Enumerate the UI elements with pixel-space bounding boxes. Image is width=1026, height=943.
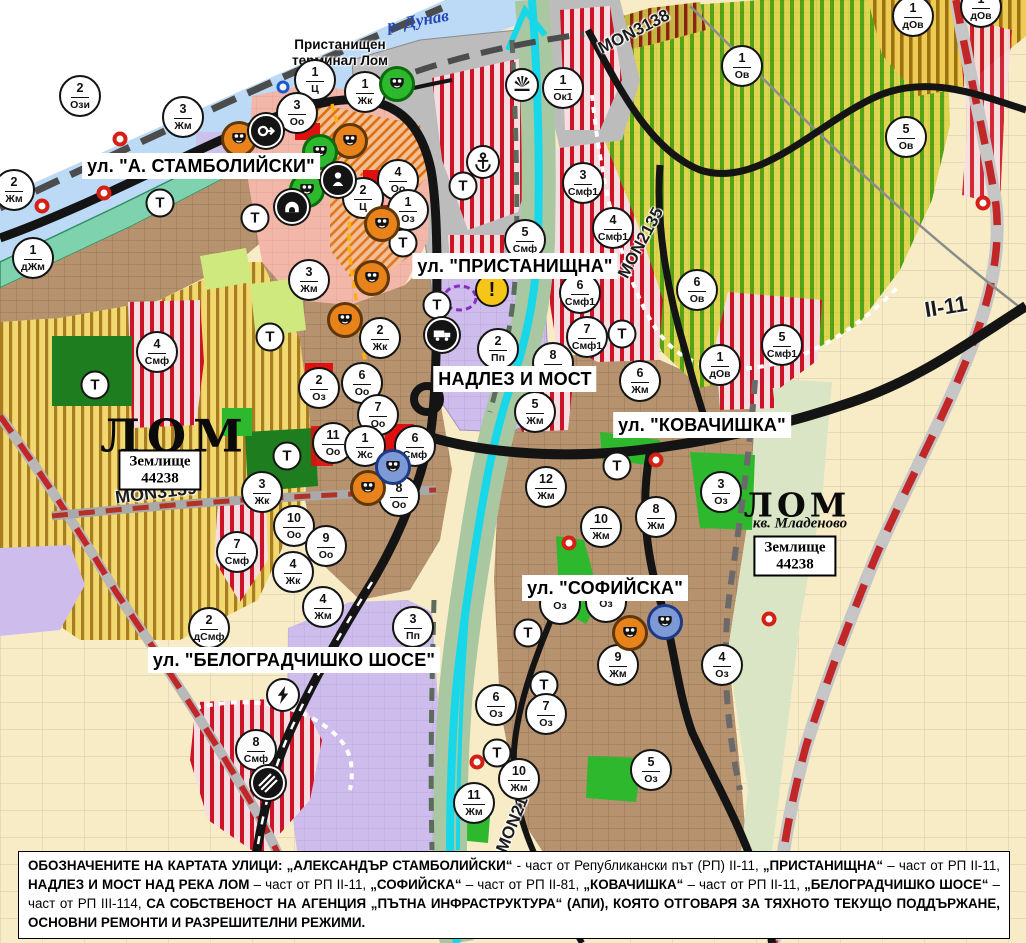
cave-glyph	[280, 195, 304, 219]
zone-number: 2	[371, 324, 389, 340]
zone-code: Жм	[510, 781, 527, 794]
transport-marker: Т	[256, 323, 285, 352]
footer-emphasis-text: „ПРИСТАНИЩНА“	[763, 858, 883, 873]
zone-marker: 1 дЖм	[12, 237, 54, 279]
zone-marker: 4 Смф1	[592, 207, 634, 249]
bolt-icon	[266, 678, 300, 712]
zone-code: Оз	[714, 494, 727, 507]
zone-number: 8	[544, 349, 562, 365]
zone-code: Ов	[735, 68, 750, 81]
zone-number: 5	[516, 226, 534, 242]
zone-number: 9	[609, 651, 627, 667]
zone-number: 6	[631, 367, 649, 383]
zone-code: Жс	[357, 448, 372, 461]
zone-number: 8	[647, 503, 665, 519]
zone-number: 4	[389, 166, 407, 182]
zone-marker: 10 Жм	[580, 506, 622, 548]
zone-marker: 9 Оо	[305, 525, 347, 567]
zone-marker: 2 Пп	[477, 328, 519, 370]
footer-emphasis-text: „СОФИЙСКА“	[370, 877, 461, 892]
zone-number: 4	[284, 558, 302, 574]
transport-marker: Т	[608, 320, 637, 349]
anchor-glyph	[471, 150, 495, 174]
zone-code: Смф1	[565, 295, 595, 308]
zone-number: 12	[535, 473, 557, 489]
zone-marker: 10 Жм	[498, 758, 540, 800]
zone-code: Жм	[314, 609, 331, 622]
zone-marker: 8 Смф	[235, 729, 277, 771]
zone-code: Жк	[255, 494, 270, 507]
zone-marker: 2 дСмф	[188, 607, 230, 649]
zone-code: Ов	[899, 139, 914, 152]
zoning-map: 2 Ози1 Ц1 Жк3 Оо3 Жм1 Ок12 Жм1 дЖм4 Оо2	[0, 0, 1026, 943]
zone-number: 1	[554, 74, 572, 90]
theater-mask-orange-glyph	[338, 129, 362, 153]
zone-code: дЖм	[21, 260, 45, 273]
zone-marker: 5 Смф1	[761, 324, 803, 366]
zone-marker: 1 Ов	[721, 45, 763, 87]
zone-number: 1	[399, 196, 417, 212]
zone-code: Жм	[609, 667, 626, 680]
zone-code: Пп	[406, 629, 420, 642]
ring-arrow-icon	[249, 114, 283, 148]
footer-emphasis-text: „БЕЛОГРАДЧИШКО ШОСЕ“	[804, 877, 988, 892]
zone-number: 5	[773, 331, 791, 347]
street-label: ул. "СОФИЙСКА"	[522, 575, 688, 601]
red-dot-icon	[762, 612, 777, 627]
zone-marker: 5 Оз	[630, 749, 672, 791]
street-label: ул. "ПРИСТАНИЩНА"	[412, 253, 617, 279]
zone-number: 7	[578, 323, 596, 339]
transport-marker: Т	[603, 452, 632, 481]
zone-marker: 7 Смф	[216, 531, 258, 573]
zone-number: 4	[713, 651, 731, 667]
zone-code: дОв	[709, 367, 730, 380]
zone-number: 2	[310, 374, 328, 390]
theater-mask-orange-glyph	[370, 212, 394, 236]
zone-code: Оо	[326, 445, 341, 458]
footer-emphasis-text: СА СОБСТВЕНОСТ НА АГЕНЦИЯ „ПЪТНА ИНФРАСТ…	[28, 896, 1000, 930]
theater-mask-orange-glyph	[360, 266, 384, 290]
zone-code: Жм	[631, 383, 648, 396]
street-label: ул. "БЕЛОГРАДЧИШКО ШОСЕ"	[148, 647, 440, 673]
zone-code: Жм	[174, 119, 191, 132]
zone-code: Смф	[145, 354, 169, 367]
red-dot-icon	[35, 199, 50, 214]
zone-code: дОв	[902, 18, 923, 31]
zone-code: Оз	[312, 390, 325, 403]
transport-marker: Т	[81, 371, 110, 400]
land-unit-east-line1: Землище	[764, 540, 825, 556]
theater-mask-blue-icon	[647, 604, 683, 640]
theater-mask-orange-glyph	[333, 308, 357, 332]
zone-marker: 1 Ок1	[542, 67, 584, 109]
red-dot-icon	[976, 196, 991, 211]
truck-icon	[425, 318, 459, 352]
zone-marker: 7 Оз	[525, 693, 567, 735]
footer-emphasis-text: „КОВАЧИШКА“	[583, 877, 683, 892]
footer-emphasis-text: ОБОЗНАЧЕНИТЕ НА КАРТАТА УЛИЦИ:	[28, 858, 287, 873]
zone-code: Жм	[5, 192, 22, 205]
zone-marker: 4 Смф	[136, 331, 178, 373]
zone-number: 1	[904, 2, 922, 18]
theater-mask-blue-glyph	[381, 455, 405, 479]
monument-icon	[321, 163, 355, 197]
footer-text: - част от Републикански път (РП) II-11,	[512, 858, 762, 873]
zone-number: 2	[489, 335, 507, 351]
zone-marker: 12 Жм	[525, 466, 567, 508]
zone-marker: 3 Жм	[288, 259, 330, 301]
zone-number: 10	[508, 765, 530, 781]
zone-marker: 2 Ози	[59, 75, 101, 117]
zone-code: Смф1	[598, 230, 628, 243]
theater-mask-orange-glyph	[618, 621, 642, 645]
zone-number: 11	[322, 429, 343, 445]
transport-marker: Т	[423, 291, 452, 320]
zone-marker: 3 Оз	[700, 471, 742, 513]
truck-glyph	[430, 323, 454, 347]
zone-code: Ц	[359, 200, 367, 213]
zone-number: 1	[972, 0, 990, 9]
theater-mask-blue-icon	[375, 449, 411, 485]
zone-code: Смф1	[767, 347, 797, 360]
zone-number: 7	[537, 700, 555, 716]
theater-mask-orange-glyph	[356, 476, 380, 500]
zone-code: Ок1	[553, 90, 572, 103]
blue-ring-icon	[277, 81, 290, 94]
zone-number: 6	[353, 369, 371, 385]
zone-number: 1	[24, 244, 42, 260]
zone-number: 3	[574, 169, 592, 185]
zone-marker: 3 Смф1	[562, 162, 604, 204]
rail-crossing-glyph	[256, 771, 280, 795]
zone-marker: 2 Оз	[298, 367, 340, 409]
zone-number: 4	[314, 593, 332, 609]
zone-marker: 3 Пп	[392, 606, 434, 648]
zone-marker: 3 Жм	[162, 96, 204, 138]
zone-marker: 5 Жм	[514, 391, 556, 433]
theater-mask-orange-icon	[364, 206, 400, 242]
footer-text: – част от РП II-11,	[249, 877, 370, 892]
transport-marker: Т	[273, 442, 302, 471]
zone-code: Пп	[491, 351, 505, 364]
zone-marker: 6 Ов	[676, 269, 718, 311]
red-dot-icon	[470, 755, 485, 770]
red-dot-icon	[97, 186, 112, 201]
zone-number: 3	[174, 103, 192, 119]
zone-marker: 4 Жк	[272, 551, 314, 593]
zone-code: Смф1	[568, 185, 598, 198]
zone-marker: 7 Смф1	[566, 316, 608, 358]
zone-code: Жм	[537, 489, 554, 502]
land-unit-east-line2: 44238	[776, 556, 814, 572]
anchor-icon	[466, 145, 500, 179]
zone-code: Смф	[225, 554, 249, 567]
transport-marker: Т	[146, 189, 175, 218]
zone-marker: 1 дОв	[699, 344, 741, 386]
mladenovo-quarter-label: кв. Младеново	[753, 516, 847, 533]
zone-code: Оо	[287, 528, 302, 541]
zone-code: Оо	[392, 498, 407, 511]
road-ownership-note: ОБОЗНАЧЕНИТЕ НА КАРТАТА УЛИЦИ: „АЛЕКСАНД…	[18, 851, 1010, 939]
zone-number: 6	[487, 691, 505, 707]
zone-marker: 8 Жм	[635, 496, 677, 538]
zone-number: 1	[733, 52, 751, 68]
zone-code: Жк	[286, 574, 301, 587]
zone-number: 3	[288, 99, 306, 115]
transport-marker: Т	[514, 619, 543, 648]
zone-code: Оз	[644, 772, 657, 785]
zone-code: Оо	[290, 115, 305, 128]
crane-glyph	[510, 73, 534, 97]
zone-code: дСмф	[193, 630, 224, 643]
zone-marker: 5 Ов	[885, 116, 927, 158]
zone-number: 7	[228, 538, 246, 554]
zone-number: 10	[283, 512, 305, 528]
zone-number: 5	[897, 123, 915, 139]
zone-number: 6	[688, 276, 706, 292]
crane-icon	[505, 68, 539, 102]
zone-code: Оз	[553, 599, 566, 612]
zone-number: 4	[148, 338, 166, 354]
zone-number: 7	[369, 401, 387, 417]
zone-marker: 2 Жк	[359, 317, 401, 359]
zone-number: 1	[306, 66, 324, 82]
street-label: НАДЛЕЗ И МОСТ	[433, 366, 596, 392]
street-label: ул. "КОВАЧИШКА"	[613, 412, 791, 438]
zone-number: 9	[317, 532, 335, 548]
zone-number: 5	[642, 756, 660, 772]
zone-number: 11	[463, 789, 484, 805]
zone-code: Смф1	[572, 339, 602, 352]
zone-marker: 6 Оз	[475, 684, 517, 726]
zone-marker: 4 Оз	[701, 644, 743, 686]
zone-code: Жм	[526, 414, 543, 427]
zone-number: 10	[590, 513, 612, 529]
transport-marker: Т	[241, 204, 270, 233]
red-dot-icon	[113, 132, 128, 147]
zone-number: 8	[247, 736, 265, 752]
zone-marker: 11 Жм	[453, 782, 495, 824]
cave-icon	[275, 190, 309, 224]
footer-text: – част от РП II-11,	[883, 858, 1000, 873]
zone-code: Смф	[244, 752, 268, 765]
zone-code: Жк	[373, 340, 388, 353]
zone-code: Оз	[401, 212, 414, 225]
zone-number: 3	[712, 478, 730, 494]
land-unit-box-west: Землище 44238	[118, 450, 201, 491]
theater-mask-orange-icon	[612, 615, 648, 651]
zone-code: Ов	[690, 292, 705, 305]
zone-marker: 3 Жк	[241, 471, 283, 513]
theater-mask-blue-glyph	[653, 610, 677, 634]
land-unit-west-line1: Землище	[129, 454, 190, 470]
zone-number: 2	[200, 614, 218, 630]
zone-number: 3	[253, 478, 271, 494]
zone-number: 2	[5, 176, 23, 192]
zone-number: 6	[406, 432, 424, 448]
monument-glyph	[326, 168, 350, 192]
zone-code: Ц	[311, 82, 319, 95]
zone-number: 1	[711, 351, 729, 367]
zone-code: Жм	[647, 519, 664, 532]
land-unit-box-east: Землище 44238	[753, 536, 836, 577]
zone-number: 3	[404, 613, 422, 629]
theater-mask-orange-icon	[327, 302, 363, 338]
zone-code: Жм	[465, 805, 482, 818]
ring-arrow-glyph	[254, 119, 278, 143]
street-label: ул. "А. СТАМБОЛИЙСКИ"	[82, 153, 320, 179]
zone-code: Оо	[319, 548, 334, 561]
red-dot-icon	[562, 536, 577, 551]
footer-emphasis-text: „АЛЕКСАНДЪР СТАМБОЛИЙСКИ“	[287, 858, 513, 873]
bolt-glyph	[271, 683, 295, 707]
zone-number: 3	[300, 266, 318, 282]
zone-number: 4	[604, 214, 622, 230]
theater-mask-orange-glyph	[227, 127, 251, 151]
zone-marker: 6 Жм	[619, 360, 661, 402]
zone-code: дОв	[970, 9, 991, 22]
zone-code: Жм	[592, 529, 609, 542]
zone-code: Оз	[715, 667, 728, 680]
zone-code: Оз	[489, 707, 502, 720]
zone-number: 2	[354, 184, 372, 200]
theater-mask-green-icon	[379, 66, 415, 102]
theater-mask-orange-icon	[354, 260, 390, 296]
theater-mask-green-glyph	[385, 72, 409, 96]
zone-code: Ози	[70, 98, 90, 111]
zone-number: 1	[356, 432, 374, 448]
zone-code: Жк	[358, 94, 373, 107]
zone-code: Жм	[300, 282, 317, 295]
footer-text: – част от РП II-81,	[462, 877, 584, 892]
red-dot-icon	[649, 453, 664, 468]
land-unit-west-line2: 44238	[141, 470, 179, 486]
zone-marker: 4 Жм	[302, 586, 344, 628]
zone-code: Оз	[539, 716, 552, 729]
zone-number: 5	[526, 398, 544, 414]
footer-text: – част от РП II-11,	[683, 877, 804, 892]
zone-number: 2	[71, 82, 89, 98]
zone-number: 1	[356, 78, 374, 94]
port-terminal-line1: Пристанищен	[294, 37, 385, 52]
zone-code: Оо	[355, 385, 370, 398]
rail-crossing-icon	[251, 766, 285, 800]
footer-emphasis-text: НАДЛЕЗ И МОСТ НАД РЕКА ЛОМ	[28, 877, 249, 892]
zone-number: 6	[571, 279, 589, 295]
